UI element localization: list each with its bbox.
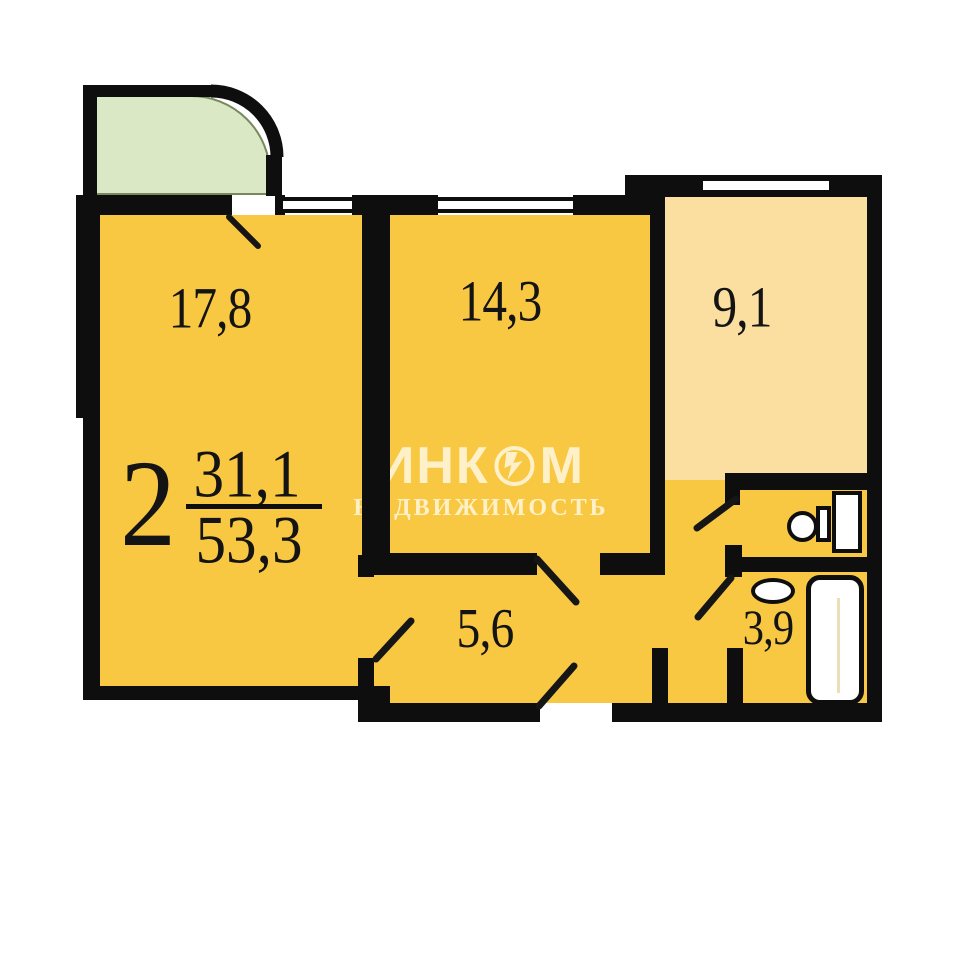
- bathroom-label: 3,9: [743, 598, 794, 656]
- corridor-label: 5,6: [457, 597, 514, 661]
- floor-plan: ИНК М НЕДВИЖИМОСТЬ: [0, 0, 960, 960]
- apartment-rooms-count: 2: [120, 433, 176, 575]
- apartment-total-area: 53,3: [195, 501, 302, 580]
- door-swing-wc: [697, 499, 736, 528]
- door-swing-room-b: [537, 559, 576, 602]
- door-swing-bathroom: [698, 578, 731, 617]
- door-swing-entry: [539, 666, 574, 706]
- door-swing-room-a: [376, 621, 411, 659]
- door-swing-balcony: [229, 217, 258, 246]
- room-b-label: 14,3: [459, 268, 542, 335]
- balcony-arc: [211, 91, 277, 157]
- room-a-label: 17,8: [169, 275, 252, 342]
- room-c-label: 9,1: [712, 274, 771, 341]
